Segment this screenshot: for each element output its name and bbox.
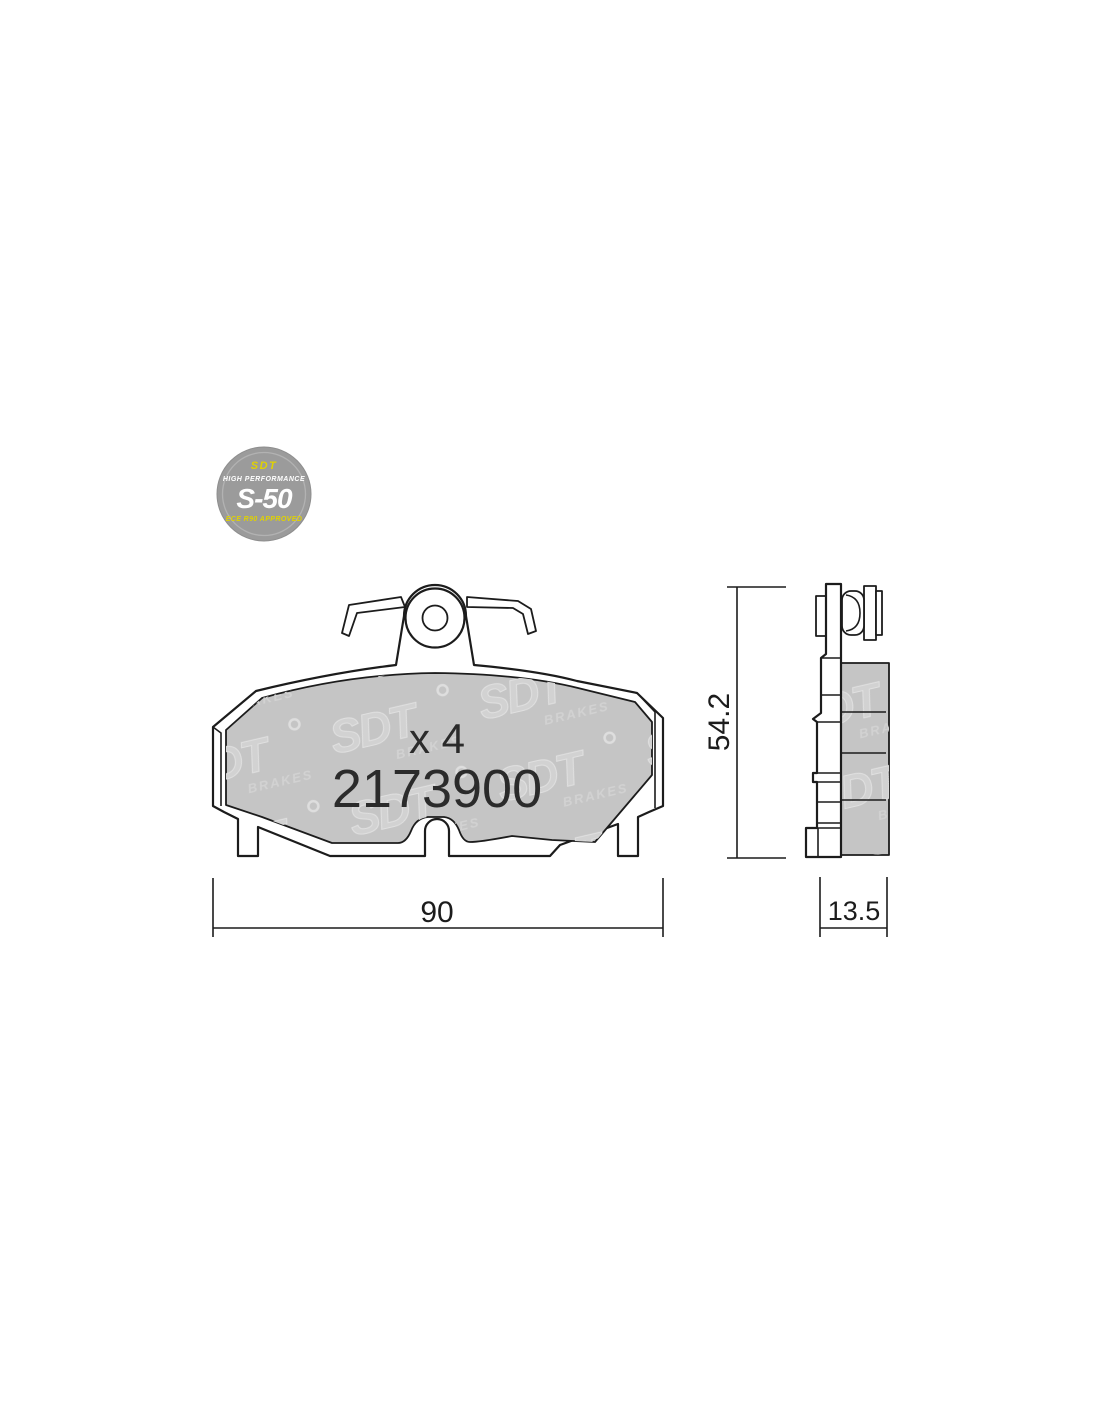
dim-thickness-label: 13.5 (828, 896, 881, 926)
boss-hole (423, 606, 448, 631)
side-view (806, 584, 910, 870)
product-drawing-page: SDT BRAKES SDT HIGH PERFORMANCE S-50 ECE… (0, 0, 1100, 1422)
left-spring-arm (342, 597, 405, 636)
badge-approval-label: ECE R90 APPROVED (226, 516, 303, 523)
clip-back-plate (864, 586, 876, 640)
right-spring-arm (467, 597, 536, 634)
front-view: x 4 2173900 (200, 585, 680, 870)
clip-back-edge (876, 591, 882, 635)
certification-badge: SDT HIGH PERFORMANCE S-50 ECE R90 APPROV… (217, 447, 311, 541)
dim-width-label: 90 (420, 896, 453, 929)
badge-model-label: S-50 (236, 483, 293, 514)
badge-tagline-label: HIGH PERFORMANCE (223, 476, 305, 483)
dimension-thickness: 13.5 (820, 877, 887, 937)
badge-brand-label: SDT (251, 460, 278, 472)
clip-left-tab (816, 596, 826, 636)
dimension-height: 54.2 (703, 587, 786, 858)
dim-height-label: 54.2 (703, 693, 736, 751)
quantity-label: x 4 (409, 715, 465, 762)
dimension-width: 90 (213, 878, 663, 937)
part-number-label: 2173900 (332, 759, 542, 819)
brake-pad-technical-drawing: SDT BRAKES SDT HIGH PERFORMANCE S-50 ECE… (0, 0, 1100, 1422)
